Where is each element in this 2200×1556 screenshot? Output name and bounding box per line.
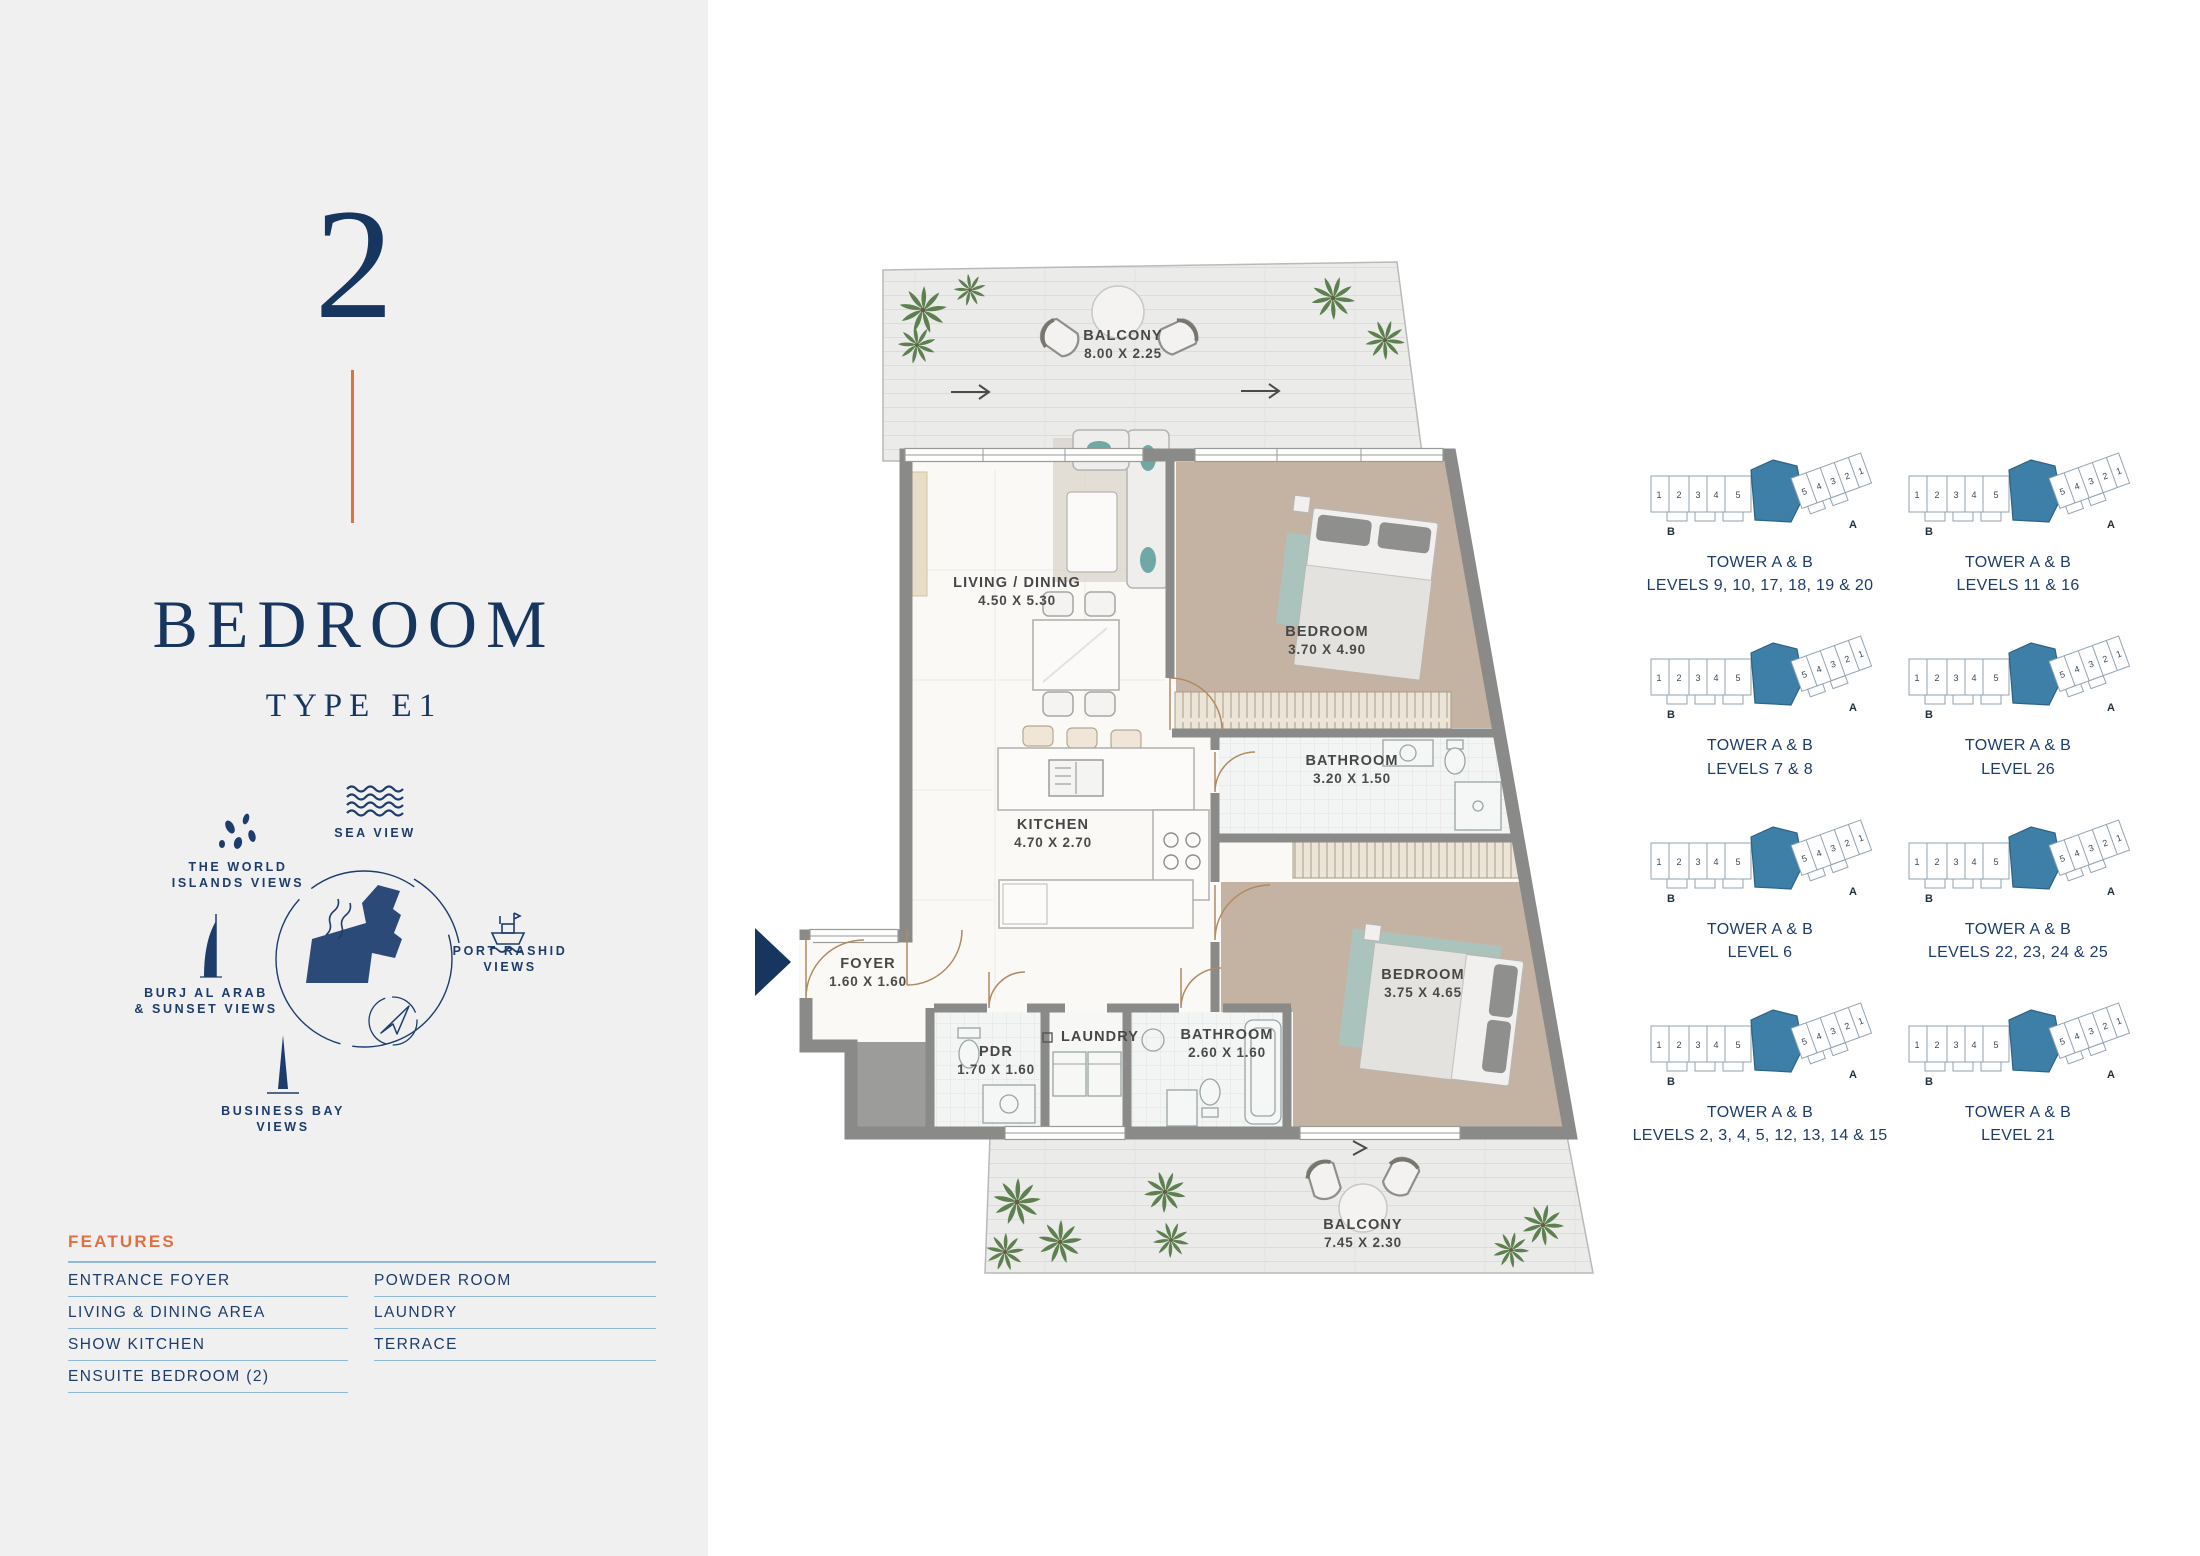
coffee-table <box>1067 492 1117 572</box>
room-label: FOYER <box>840 956 895 972</box>
features-heading: FEATURES <box>68 1232 656 1263</box>
wing-a-label: A <box>1849 886 1857 898</box>
key-plan-levels-label: LEVELS 9, 10, 17, 18, 19 & 20 <box>1647 574 1874 597</box>
svg-text:2: 2 <box>1934 857 1939 867</box>
svg-text:5: 5 <box>1735 857 1740 867</box>
room-dimensions: 8.00 X 2.25 <box>1084 346 1162 361</box>
view-label-world-1: THE WORLD <box>188 860 287 874</box>
svg-text:1: 1 <box>1914 673 1919 683</box>
svg-text:3: 3 <box>1695 857 1700 867</box>
page-title: BEDROOM <box>0 585 708 664</box>
room-dimensions: 3.70 X 4.90 <box>1288 642 1366 657</box>
key-plan-card: 5 4 3 2 1 1 2 3 4 5 B A TOWER A & B LEVE… <box>1645 807 1875 964</box>
feature-item: TERRACE <box>374 1329 656 1361</box>
key-plan-tower-label: TOWER A & B <box>1965 734 2071 757</box>
feature-item: ENTRANCE FOYER <box>68 1265 348 1297</box>
key-plan-tower-label: TOWER A & B <box>1956 551 2079 574</box>
key-plan-diagram: 5 4 3 2 1 1 2 3 4 5 B A <box>1645 623 1875 728</box>
views-compass-diagram: SEA VIEW THE WORLD ISLANDS VIEWS <box>110 775 570 1165</box>
room-dimensions: 1.70 X 1.60 <box>957 1062 1035 1077</box>
entrance-marker <box>755 928 791 996</box>
svg-text:4: 4 <box>1971 673 1976 683</box>
room-label: LIVING / DINING <box>953 575 1081 591</box>
room-dimensions: 1.60 X 1.60 <box>829 974 907 989</box>
key-plan-diagram: 5 4 3 2 1 1 2 3 4 5 B A <box>1903 990 2133 1095</box>
svg-text:3: 3 <box>1953 673 1958 683</box>
svg-text:1: 1 <box>1914 1040 1919 1050</box>
key-plan-diagram: 5 4 3 2 1 1 2 3 4 5 B A <box>1903 623 2133 728</box>
svg-text:4: 4 <box>1713 857 1718 867</box>
svg-text:5: 5 <box>1993 490 1998 500</box>
wing-b-label: B <box>1667 1076 1675 1088</box>
feature-item: LAUNDRY <box>374 1297 656 1329</box>
svg-text:4: 4 <box>1971 857 1976 867</box>
brochure-page: 2 BEDROOM TYPE E1 SEA VIEW THE WORLD <box>0 0 2200 1556</box>
bar-stool <box>1111 730 1141 750</box>
key-plan-levels-label: LEVELS 2, 3, 4, 5, 12, 13, 14 & 15 <box>1633 1124 1888 1147</box>
room-label: BALCONY <box>1323 1217 1402 1233</box>
sea-waves-icon <box>347 787 403 816</box>
svg-text:1: 1 <box>1656 673 1661 683</box>
view-label-burj-1: BURJ AL ARAB <box>144 986 268 1000</box>
view-label-port-2: VIEWS <box>483 960 536 974</box>
svg-text:5: 5 <box>1993 857 1998 867</box>
key-plan-diagram: 5 4 3 2 1 1 2 3 4 5 B A <box>1645 440 1875 545</box>
features-section: FEATURES ENTRANCE FOYERLIVING & DINING A… <box>68 1232 656 1393</box>
dining-chair <box>1085 592 1115 616</box>
key-plan-card: 5 4 3 2 1 1 2 3 4 5 B A TOWER A & B LEVE… <box>1645 990 1875 1147</box>
key-plan-levels-label: LEVELS 22, 23, 24 & 25 <box>1928 941 2108 964</box>
room-dimensions: 4.70 X 2.70 <box>1014 835 1092 850</box>
vanity <box>1167 1090 1197 1126</box>
features-column-1: ENTRANCE FOYERLIVING & DINING AREASHOW K… <box>68 1265 348 1393</box>
page-subtitle: TYPE E1 <box>0 688 708 725</box>
wing-a-label: A <box>1849 1069 1857 1081</box>
toilet <box>958 1028 980 1038</box>
key-plan-diagram: 5 4 3 2 1 1 2 3 4 5 B A <box>1645 990 1875 1095</box>
wall-mass <box>847 1042 930 1131</box>
svg-text:5: 5 <box>1735 1040 1740 1050</box>
wing-b-label: B <box>1925 1076 1933 1088</box>
key-plan-card: 5 4 3 2 1 1 2 3 4 5 B A TOWER A & B LEVE… <box>1903 440 2133 597</box>
sidebar: 2 BEDROOM TYPE E1 SEA VIEW THE WORLD <box>0 0 708 1556</box>
bar-stool <box>1067 728 1097 748</box>
key-plan-tower-label: TOWER A & B <box>1965 1101 2071 1124</box>
wing-b-label: B <box>1667 709 1675 721</box>
title-divider-rule <box>351 370 354 523</box>
svg-text:2: 2 <box>1934 490 1939 500</box>
kitchen-counter <box>999 880 1193 928</box>
svg-text:4: 4 <box>1971 1040 1976 1050</box>
svg-text:4: 4 <box>1713 673 1718 683</box>
wardrobe <box>1175 692 1451 730</box>
key-plan-tower-label: TOWER A & B <box>1647 551 1874 574</box>
nightstand <box>1293 495 1311 513</box>
key-plan-card: 5 4 3 2 1 1 2 3 4 5 B A TOWER A & B LEVE… <box>1903 623 2133 780</box>
svg-text:3: 3 <box>1953 490 1958 500</box>
wing-a-label: A <box>2107 1069 2115 1081</box>
building-footprint-icon <box>306 885 402 983</box>
dryer <box>1088 1052 1121 1096</box>
wing-a-label: A <box>1849 519 1857 531</box>
room-label: BATHROOM <box>1180 1027 1273 1043</box>
key-plan-card: 5 4 3 2 1 1 2 3 4 5 B A TOWER A & B LEVE… <box>1645 623 1875 780</box>
room-dimensions: 3.75 X 4.65 <box>1384 985 1462 1000</box>
key-plan-diagram: 5 4 3 2 1 1 2 3 4 5 B A <box>1903 807 2133 912</box>
key-plan-grid: 5 4 3 2 1 1 2 3 4 5 B A TOWER A & B LEVE… <box>1645 440 2137 1148</box>
key-plan-diagram: 5 4 3 2 1 1 2 3 4 5 B A <box>1903 440 2133 545</box>
room-dimensions: 7.45 X 2.30 <box>1324 1235 1402 1250</box>
bedroom-2-furniture <box>1336 922 1526 1086</box>
room-dimensions: 4.50 X 5.30 <box>978 593 1056 608</box>
view-label-burj-2: & SUNSET VIEWS <box>134 1002 277 1016</box>
svg-text:3: 3 <box>1695 490 1700 500</box>
svg-text:4: 4 <box>1713 490 1718 500</box>
wardrobe <box>1293 840 1521 878</box>
key-plan-levels-label: LEVEL 6 <box>1707 941 1813 964</box>
view-label-sea: SEA VIEW <box>334 826 415 840</box>
svg-text:3: 3 <box>1953 857 1958 867</box>
room-label: LAUNDRY <box>1061 1029 1139 1045</box>
key-plan-diagram: 5 4 3 2 1 1 2 3 4 5 B A <box>1645 807 1875 912</box>
wing-a-label: A <box>2107 702 2115 714</box>
svg-text:2: 2 <box>1676 1040 1681 1050</box>
svg-text:1: 1 <box>1656 1040 1661 1050</box>
room-label: BALCONY <box>1083 328 1162 344</box>
wing-a-label: A <box>1849 702 1857 714</box>
feature-item: ENSUITE BEDROOM (2) <box>68 1361 348 1393</box>
features-column-2: POWDER ROOMLAUNDRYTERRACE <box>374 1265 656 1393</box>
business-bay-icon <box>267 1035 299 1093</box>
unit-number: 2 <box>0 186 708 344</box>
key-plan-card: 5 4 3 2 1 1 2 3 4 5 B A TOWER A & B LEVE… <box>1645 440 1875 597</box>
dining-chair <box>1085 692 1115 716</box>
svg-text:3: 3 <box>1695 1040 1700 1050</box>
svg-text:2: 2 <box>1676 490 1681 500</box>
room-label: BEDROOM <box>1285 624 1368 640</box>
vanity <box>983 1085 1035 1123</box>
key-plan-levels-label: LEVELS 11 & 16 <box>1956 574 2079 597</box>
svg-text:5: 5 <box>1993 673 1998 683</box>
key-plan-levels-label: LEVEL 26 <box>1965 758 2071 781</box>
feature-item: LIVING & DINING AREA <box>68 1297 348 1329</box>
compass-accent-arc <box>414 879 459 943</box>
svg-text:3: 3 <box>1695 673 1700 683</box>
wing-b-label: B <box>1925 709 1933 721</box>
nightstand <box>1364 924 1382 942</box>
svg-text:4: 4 <box>1713 1040 1718 1050</box>
north-arrow-icon <box>369 997 417 1045</box>
washer <box>1053 1052 1086 1096</box>
view-label-world-2: ISLANDS VIEWS <box>172 876 304 890</box>
key-plan-tower-label: TOWER A & B <box>1707 918 1813 941</box>
wing-a-label: A <box>2107 519 2115 531</box>
key-plan-tower-label: TOWER A & B <box>1707 734 1813 757</box>
svg-text:1: 1 <box>1914 857 1919 867</box>
key-plan-tower-label: TOWER A & B <box>1633 1101 1888 1124</box>
room-label: KITCHEN <box>1017 817 1089 833</box>
svg-text:5: 5 <box>1735 490 1740 500</box>
svg-text:2: 2 <box>1676 673 1681 683</box>
view-label-bay-2: VIEWS <box>256 1120 309 1134</box>
svg-text:2: 2 <box>1676 857 1681 867</box>
wing-b-label: B <box>1667 893 1675 905</box>
key-plan-levels-label: LEVEL 21 <box>1965 1124 2071 1147</box>
wing-b-label: B <box>1925 526 1933 538</box>
wing-b-label: B <box>1667 526 1675 538</box>
svg-text:5: 5 <box>1735 673 1740 683</box>
room-dimensions: 3.20 X 1.50 <box>1313 771 1391 786</box>
dining-chair <box>1043 692 1073 716</box>
svg-text:5: 5 <box>1993 1040 1998 1050</box>
key-plan-card: 5 4 3 2 1 1 2 3 4 5 B A TOWER A & B LEVE… <box>1903 807 2133 964</box>
toilet <box>1202 1108 1218 1117</box>
room-label: PDR <box>979 1044 1013 1060</box>
wing-b-label: B <box>1925 893 1933 905</box>
bar-stool <box>1023 726 1053 746</box>
balcony-bottom <box>983 1136 1593 1275</box>
world-islands-icon <box>219 813 257 850</box>
svg-text:2: 2 <box>1934 1040 1939 1050</box>
floor-plan: BALCONY8.00 X 2.25LIVING / DINING4.50 X … <box>755 240 1635 1315</box>
shower <box>1455 782 1501 830</box>
svg-text:2: 2 <box>1934 673 1939 683</box>
room-label: BEDROOM <box>1381 967 1464 983</box>
view-label-bay-1: BUSINESS BAY <box>221 1104 345 1118</box>
room-label: BATHROOM <box>1305 753 1398 769</box>
key-plan-card: 5 4 3 2 1 1 2 3 4 5 B A TOWER A & B LEVE… <box>1903 990 2133 1147</box>
room-dimensions: 2.60 X 1.60 <box>1188 1045 1266 1060</box>
wing-a-label: A <box>2107 886 2115 898</box>
key-plan-tower-label: TOWER A & B <box>1928 918 2108 941</box>
key-plan-levels-label: LEVELS 7 & 8 <box>1707 758 1813 781</box>
svg-text:1: 1 <box>1914 490 1919 500</box>
svg-text:1: 1 <box>1656 857 1661 867</box>
svg-text:3: 3 <box>1953 1040 1958 1050</box>
feature-item: POWDER ROOM <box>374 1265 656 1297</box>
view-label-port-1: PORT RASHID <box>453 944 568 958</box>
svg-text:1: 1 <box>1656 490 1661 500</box>
burj-al-arab-icon <box>200 914 222 977</box>
svg-text:4: 4 <box>1971 490 1976 500</box>
feature-item: SHOW KITCHEN <box>68 1329 348 1361</box>
